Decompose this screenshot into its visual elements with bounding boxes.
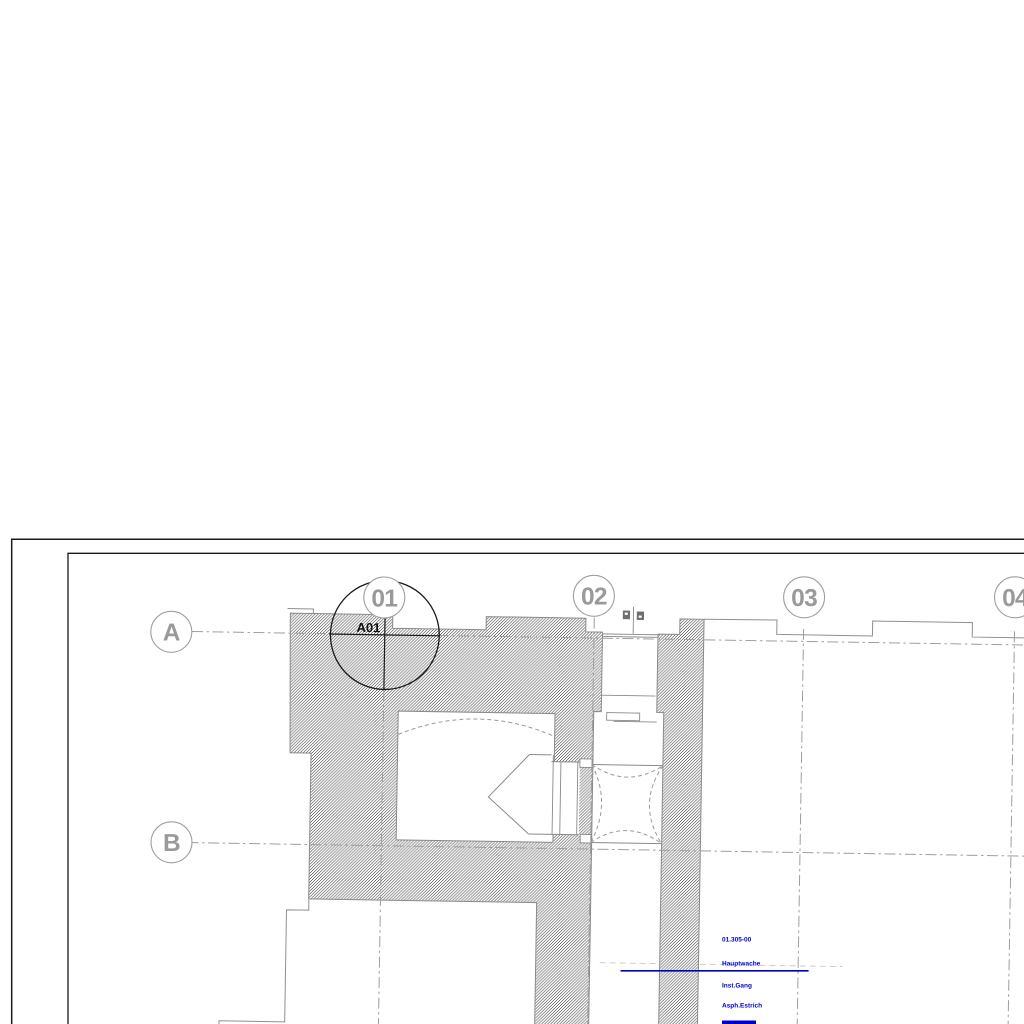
svg-text:B: B	[163, 830, 180, 857]
svg-text:Inst.Gang: Inst.Gang	[722, 983, 752, 990]
svg-text:04: 04	[1002, 585, 1024, 612]
svg-text:Hauptwache: Hauptwache	[722, 961, 761, 968]
svg-text:A: A	[163, 620, 181, 647]
svg-text:A01: A01	[356, 620, 380, 635]
svg-text:01.305-00: 01.305-00	[722, 937, 752, 944]
svg-text:03: 03	[791, 585, 817, 612]
svg-text:Asph.Estrich: Asph.Estrich	[722, 1003, 762, 1010]
svg-text:02: 02	[581, 584, 607, 611]
svg-text:01: 01	[371, 585, 397, 612]
